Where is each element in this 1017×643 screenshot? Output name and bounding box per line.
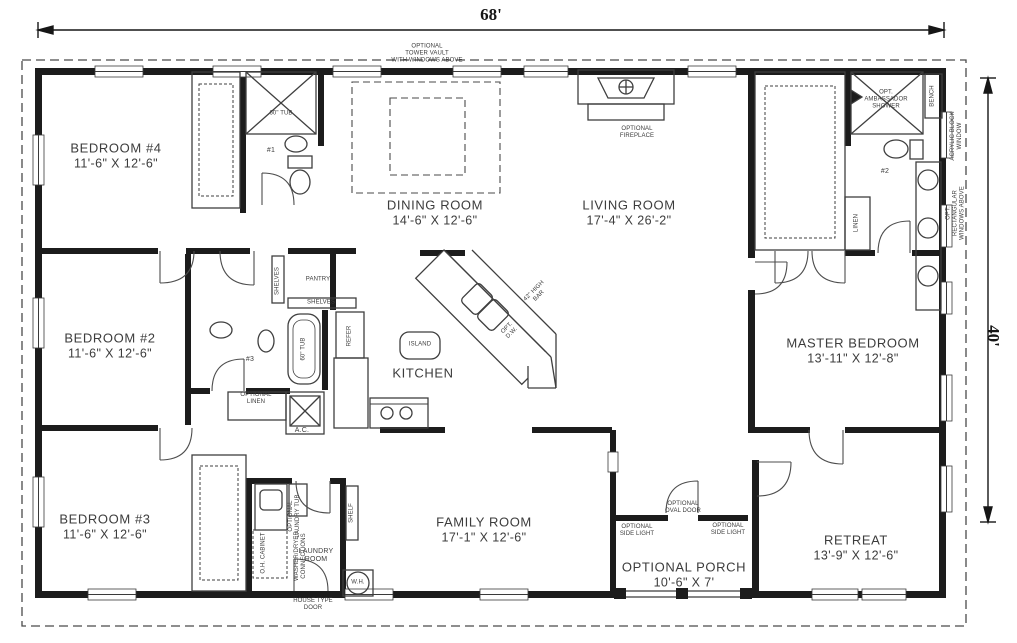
tower-vault-outline <box>352 82 500 193</box>
floor-plan-drawing <box>0 0 1017 643</box>
laundry-fixtures <box>253 484 369 594</box>
ac-unit <box>290 396 320 426</box>
kitchen-fixtures <box>334 250 556 428</box>
porch-rail <box>614 588 752 600</box>
fireplace <box>578 70 674 120</box>
floor-plan: 68' 40' OPTIONAL TOWER VAULT WITH WINDOW… <box>0 0 1017 643</box>
closets <box>192 72 870 596</box>
bath3-fixtures <box>210 314 320 384</box>
bath1-fixtures <box>246 72 316 194</box>
bath2-fixtures <box>851 72 942 310</box>
breakfast-bar <box>416 250 556 388</box>
